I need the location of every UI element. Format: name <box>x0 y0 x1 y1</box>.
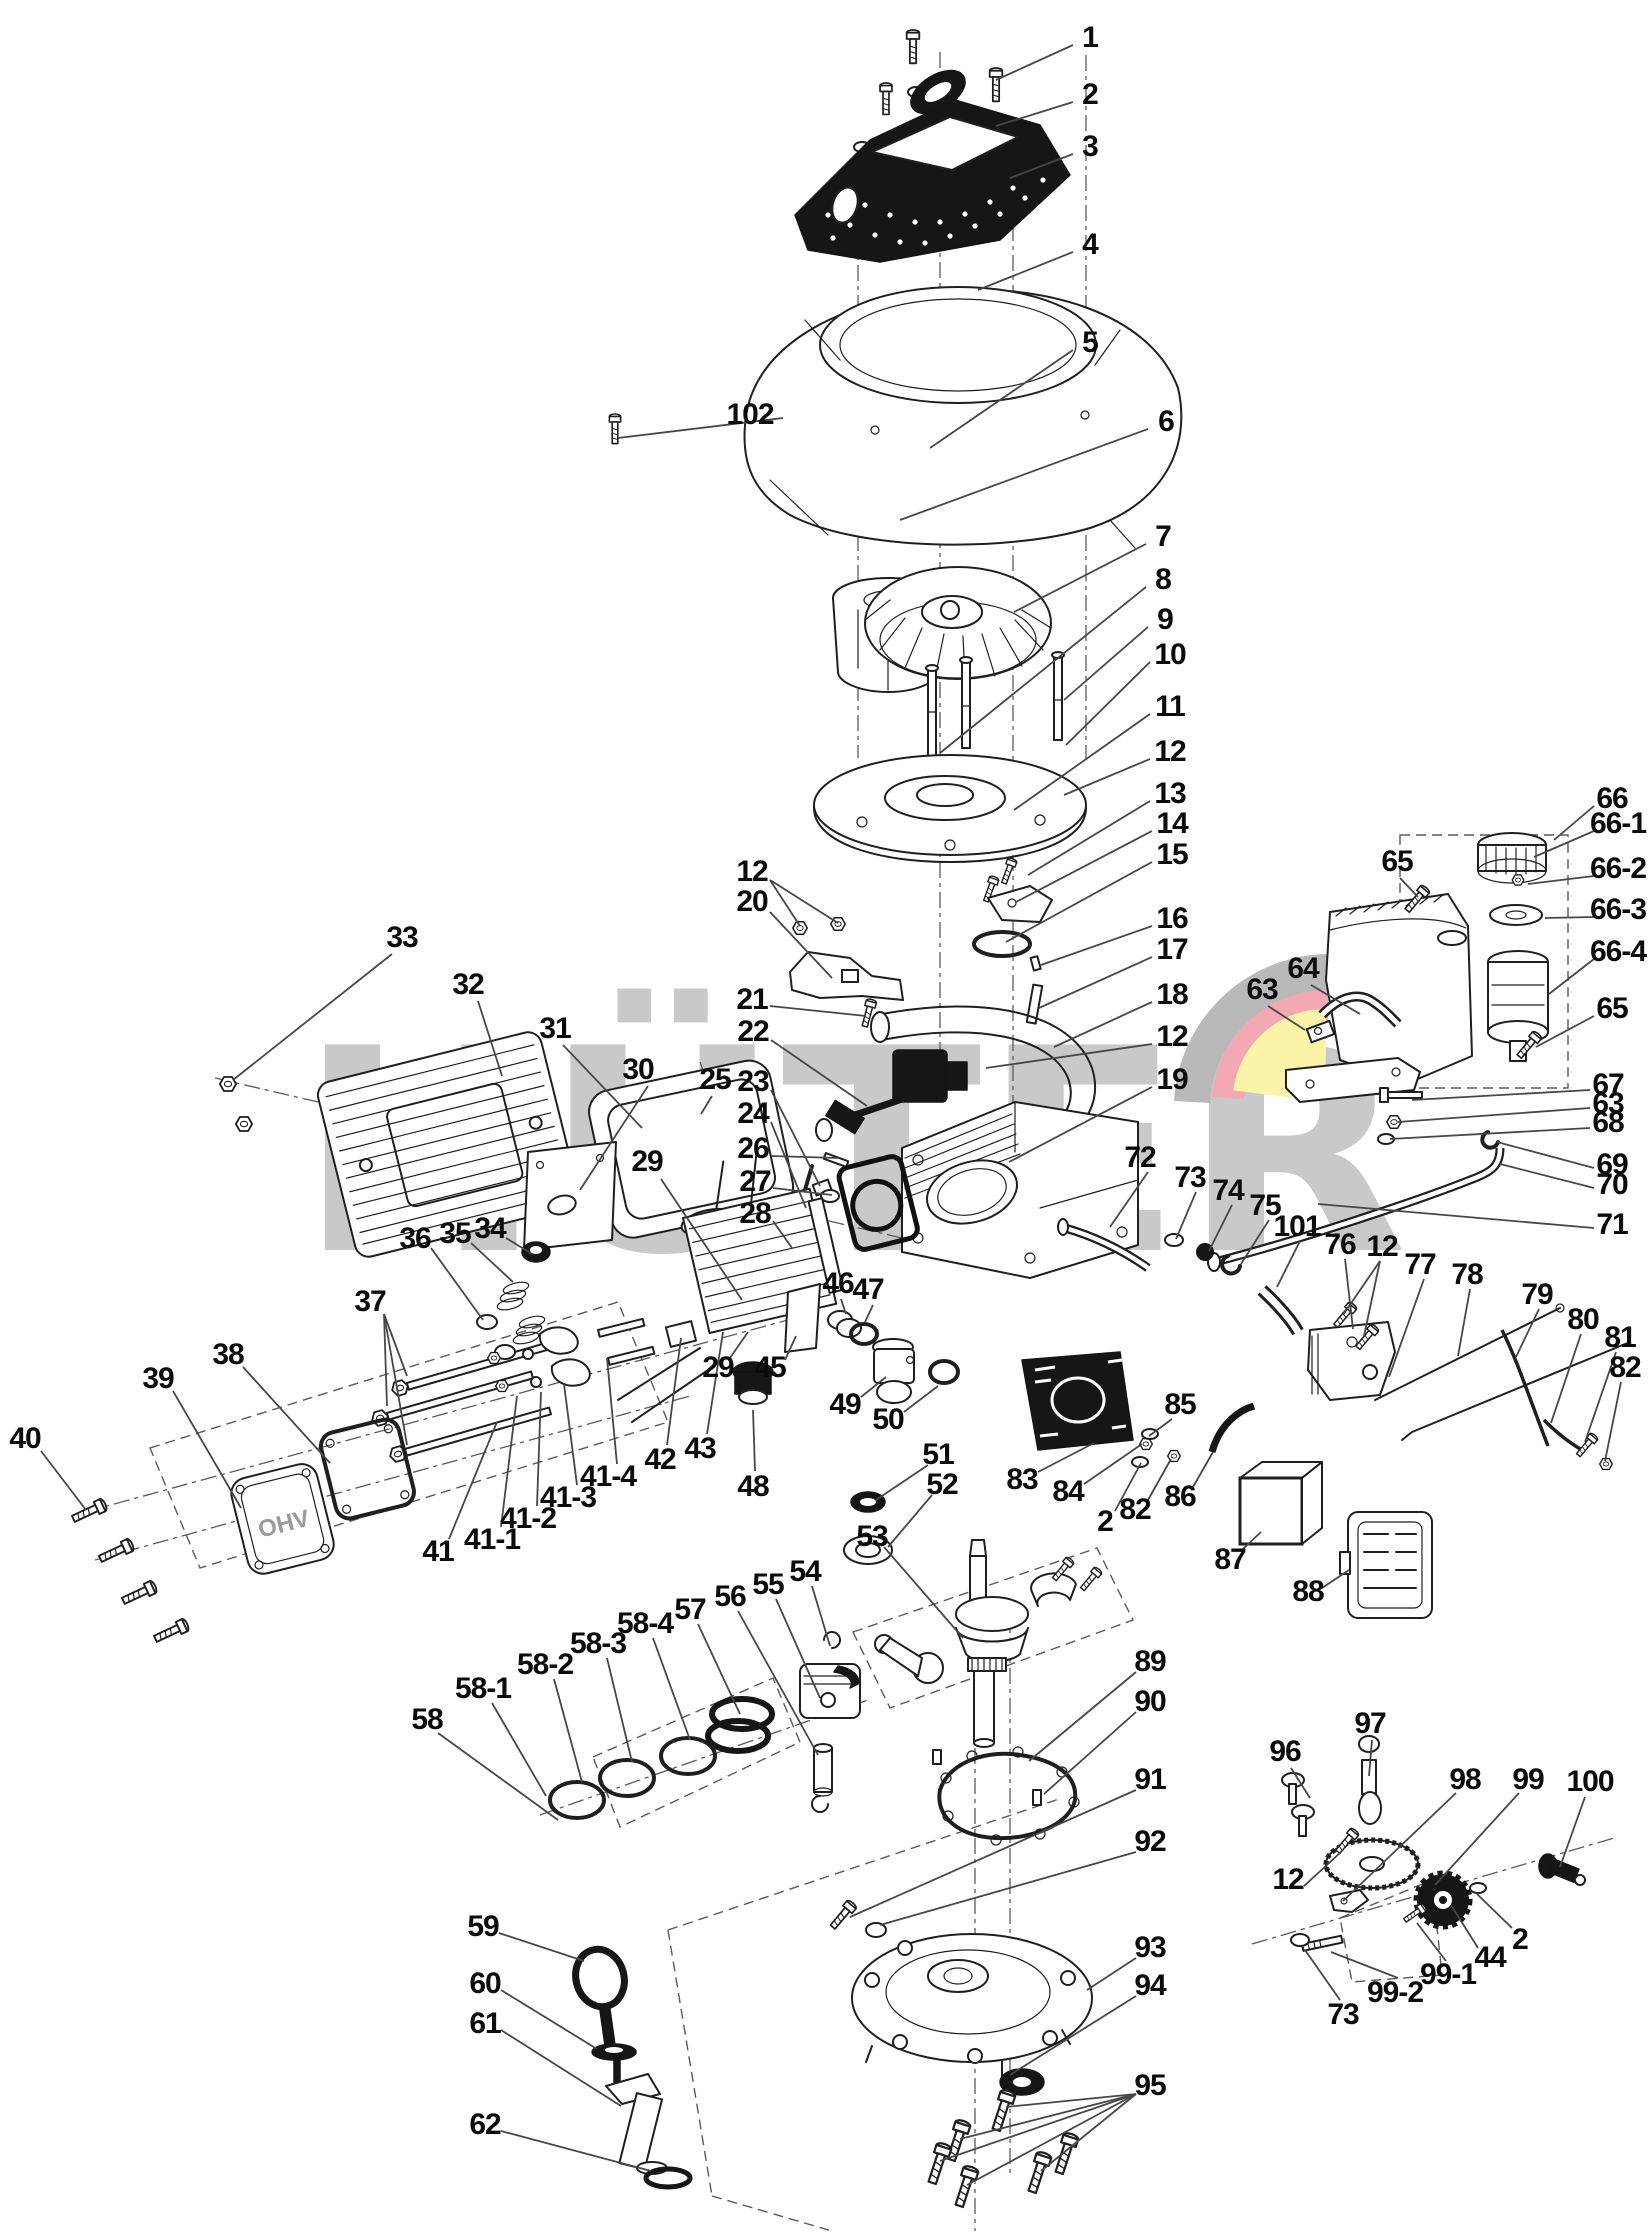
leader-line-59 <box>499 1933 584 1961</box>
leader-line-63 <box>1398 1108 1590 1122</box>
leader-line-95 <box>967 2094 1136 2185</box>
leader-line-61 <box>501 2030 621 2106</box>
leader-line-37 <box>384 1314 407 1376</box>
leader-line-41-3 <box>564 1384 577 1485</box>
ring-set <box>550 1738 715 1818</box>
leader-line-90 <box>1044 1712 1136 1794</box>
rod-cap-bolts <box>1031 1556 1103 1606</box>
leader-line-82 <box>1605 1382 1621 1461</box>
diagram-art: HÜTER <box>0 0 1648 2233</box>
leader-line-43 <box>707 1332 723 1434</box>
leader-line-40 <box>41 1451 86 1510</box>
dipstick-group <box>569 1944 690 2187</box>
leader-line-2 <box>1477 1894 1512 1928</box>
flywheel <box>814 755 1086 862</box>
leader-line-12 <box>770 880 838 923</box>
leader-line-79 <box>1516 1309 1539 1357</box>
heat-shield-plate <box>524 1142 616 1250</box>
camshaft-97 <box>1326 1736 1418 1888</box>
filter-cover <box>1340 1512 1432 1618</box>
brake-spring-86 <box>1212 1406 1254 1452</box>
tappets-96 <box>1282 1773 1314 1836</box>
bearing-52 <box>844 1536 892 1564</box>
leader-line-78 <box>1458 1289 1470 1356</box>
leader-line-80 <box>1551 1334 1581 1423</box>
leader-line-91 <box>850 1790 1136 1917</box>
leader-line-2 <box>996 102 1073 126</box>
leader-line-100 <box>1560 1797 1585 1867</box>
plunger-100 <box>1539 1854 1585 1885</box>
leader-line-51 <box>876 1465 928 1500</box>
leader-line-12 <box>770 880 800 926</box>
leader-line-41-2 <box>537 1392 541 1506</box>
leader-line-66-4 <box>1549 959 1594 994</box>
crankcase-gasket <box>933 1747 1079 1845</box>
governor-gear-44 <box>1417 1874 1469 1926</box>
leader-line-99 <box>1435 1793 1519 1885</box>
ring-group-box <box>593 1678 800 1827</box>
leader-line-99-1 <box>1417 1923 1446 1961</box>
intake-cap <box>733 1362 773 1404</box>
leader-line-88 <box>1322 1570 1349 1588</box>
cap-nut <box>1512 875 1524 885</box>
leader-line-68 <box>1390 1128 1590 1139</box>
leader-line-54 <box>812 1586 830 1646</box>
compression-rings <box>708 1699 772 1751</box>
leader-line-58 <box>438 1733 558 1820</box>
leader-line-58-4 <box>653 1638 690 1740</box>
leader-line-66 <box>1554 806 1594 840</box>
leader-line-65 <box>1400 878 1418 897</box>
leader-line-2 <box>1115 1463 1141 1511</box>
leader-line-85 <box>1149 1419 1172 1436</box>
cap-washer <box>1490 905 1542 925</box>
tank-cap <box>1478 833 1546 883</box>
rocker-group-box <box>150 1302 668 1568</box>
oil-seal-51 <box>851 1492 885 1512</box>
leader-line-42 <box>667 1338 681 1445</box>
leader-line-4 <box>978 252 1073 290</box>
leader-line-58-2 <box>554 1679 582 1782</box>
exploded-parts-diagram: HÜTER <box>0 0 1648 2233</box>
filter-element <box>1240 1462 1322 1544</box>
dowel-pin-90 <box>1033 1790 1041 1805</box>
valve-shroud-plate <box>785 1284 820 1352</box>
fastener-cluster <box>1132 1429 1180 1467</box>
leader-line-73 <box>1305 1950 1340 2000</box>
leader-line-58-1 <box>492 1703 546 1796</box>
pin-clip-55b <box>812 1796 828 1812</box>
leader-line-48 <box>753 1410 755 1471</box>
bolt-102 <box>609 414 620 444</box>
leader-line-41-1 <box>501 1396 517 1527</box>
leader-line-67 <box>1412 1090 1590 1100</box>
carburetor <box>873 1339 914 1403</box>
leader-line-10 <box>1066 662 1150 745</box>
cover-bolts-40 <box>71 1498 190 1645</box>
blower-housing <box>745 287 1182 548</box>
leader-line-41-4 <box>607 1358 617 1464</box>
governor-linkage <box>1308 1301 1630 1469</box>
leader-line-29 <box>730 1332 748 1358</box>
washer-92 <box>866 1923 886 1937</box>
valve-cover: OHV <box>228 1461 337 1577</box>
flywheel-fan <box>865 567 1051 680</box>
leader-line-52 <box>888 1495 932 1547</box>
leader-line-9 <box>1064 627 1148 700</box>
leader-line-69 <box>1497 1142 1594 1168</box>
leader-line-99-2 <box>1331 1952 1398 1978</box>
crankshaft <box>956 1540 1028 1747</box>
leader-line-58-3 <box>607 1658 632 1762</box>
insulator-gasket <box>930 1361 958 1383</box>
leader-line-16 <box>1041 926 1152 965</box>
pan-bolts-95 <box>925 2089 1079 2208</box>
leader-line-93 <box>1087 1958 1136 1990</box>
connecting-rod <box>875 1635 943 1683</box>
air-cleaner-cover <box>795 62 1070 262</box>
washer-73 <box>1165 1234 1183 1246</box>
leader-line-57 <box>698 1624 740 1714</box>
leader-line-66-2 <box>1528 876 1594 884</box>
leader-line-82 <box>1148 1459 1171 1500</box>
leader-line-70 <box>1500 1164 1594 1188</box>
leader-line-12 <box>1064 759 1150 795</box>
leader-line-55 <box>776 1599 820 1698</box>
fuel-tank-group <box>1307 833 1548 1084</box>
leader-line-86 <box>1193 1452 1213 1487</box>
leader-line-53 <box>884 1547 963 1638</box>
leader-line-38 <box>243 1367 330 1463</box>
fan-housing-plate <box>1022 1352 1133 1450</box>
muffler-nut-33b <box>236 1117 252 1131</box>
leader-line-92 <box>880 1852 1136 1925</box>
washer-2b <box>1470 1883 1486 1893</box>
oil-pan <box>852 1934 1092 2076</box>
leader-line-66-3 <box>1545 917 1594 918</box>
cover-gasket <box>318 1417 417 1522</box>
leader-line-89 <box>1029 1672 1136 1761</box>
leader-line-1 <box>996 45 1073 80</box>
leader-line-39 <box>173 1391 241 1508</box>
